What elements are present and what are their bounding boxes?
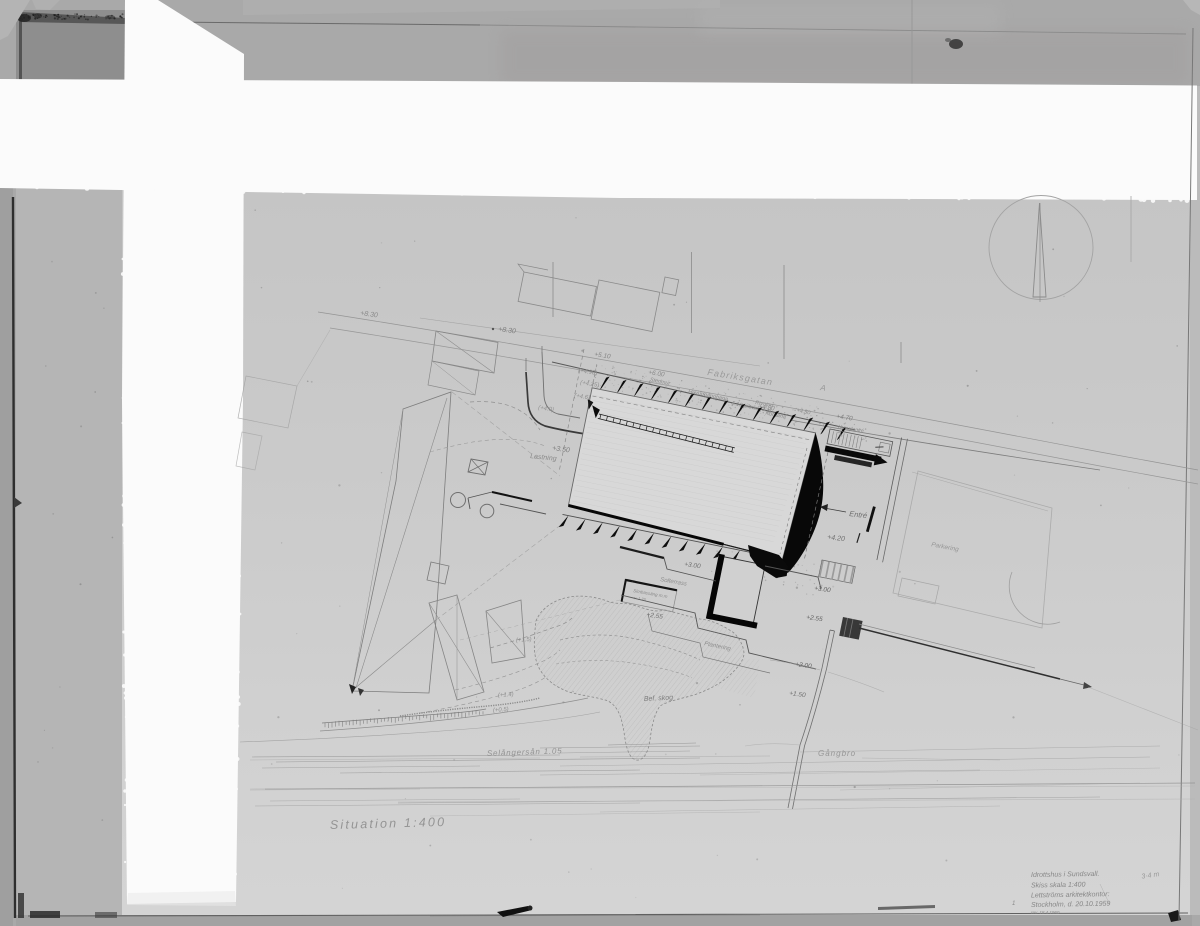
svg-text:1: 1 bbox=[1012, 901, 1015, 907]
svg-text:Skiss skala 1:400: Skiss skala 1:400 bbox=[1031, 882, 1086, 890]
svg-text:(+1.4): (+1.4) bbox=[498, 692, 514, 699]
svg-text:rev. 18.4.1960: rev. 18.4.1960 bbox=[1031, 910, 1060, 915]
svg-text:Gångbro: Gångbro bbox=[818, 749, 856, 758]
svg-text:Lettströms arkitektkontor:: Lettströms arkitektkontor: bbox=[1031, 891, 1110, 899]
svg-text:Idrottshus i Sundsvall.: Idrottshus i Sundsvall. bbox=[1031, 871, 1100, 879]
svg-text:Stockholm, d. 20.10.1959: Stockholm, d. 20.10.1959 bbox=[1031, 901, 1111, 909]
svg-text:(+1.5): (+1.5) bbox=[516, 637, 532, 644]
